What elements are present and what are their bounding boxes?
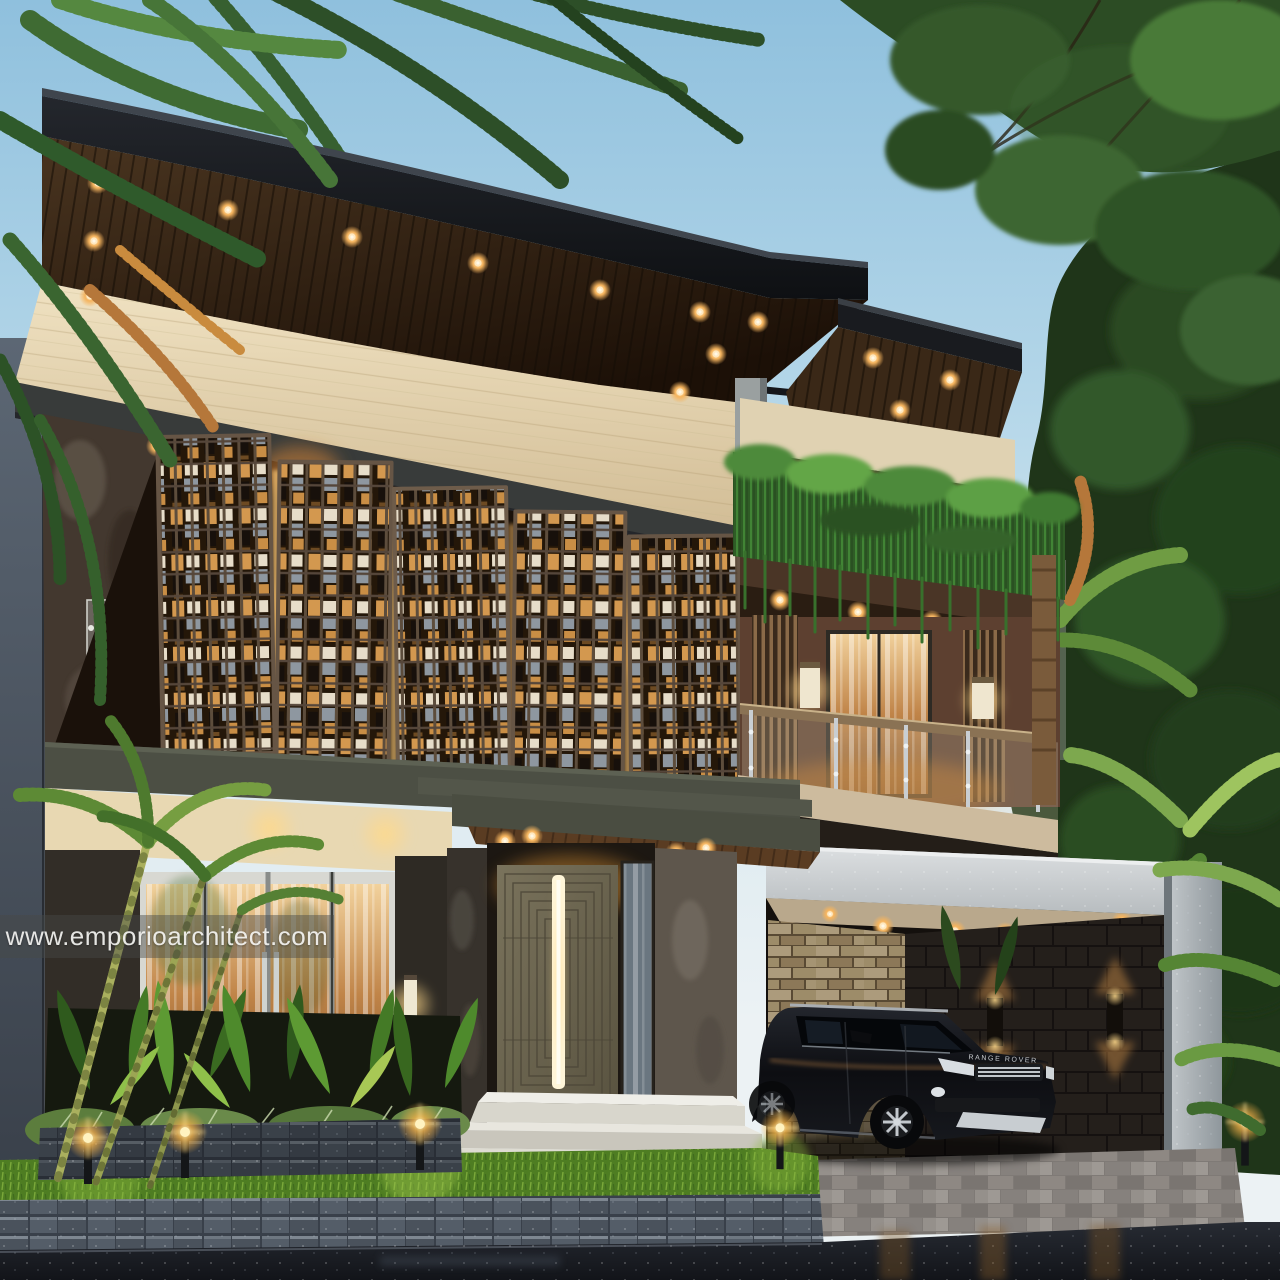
door-sidelight (622, 862, 653, 1098)
watermark-banner: www.emporioarchitect.com (0, 915, 334, 958)
lattice-panel-2 (276, 461, 391, 762)
lattice-panel-4 (513, 511, 626, 776)
lattice-panel-1 (157, 435, 275, 755)
entry-steps (444, 1092, 772, 1158)
lattice-panel-3 (394, 487, 510, 771)
entry-portal (447, 843, 737, 1130)
watermark-text: www.emporioarchitect.com (6, 921, 329, 952)
render-canvas: RANGE ROVER (0, 0, 1280, 1280)
palm-trunk (1032, 555, 1056, 805)
car-headlight-right (1046, 1066, 1054, 1080)
lattice-panel-5 (629, 536, 741, 783)
front-door (497, 865, 618, 1112)
house-render: RANGE ROVER (0, 0, 1280, 1280)
car-grille (975, 1064, 1043, 1081)
carport-pillar (1164, 862, 1222, 1184)
car-lower-grille (935, 1098, 1040, 1112)
car-front-wheel (870, 1095, 924, 1149)
car-fog-trim (931, 1087, 945, 1097)
